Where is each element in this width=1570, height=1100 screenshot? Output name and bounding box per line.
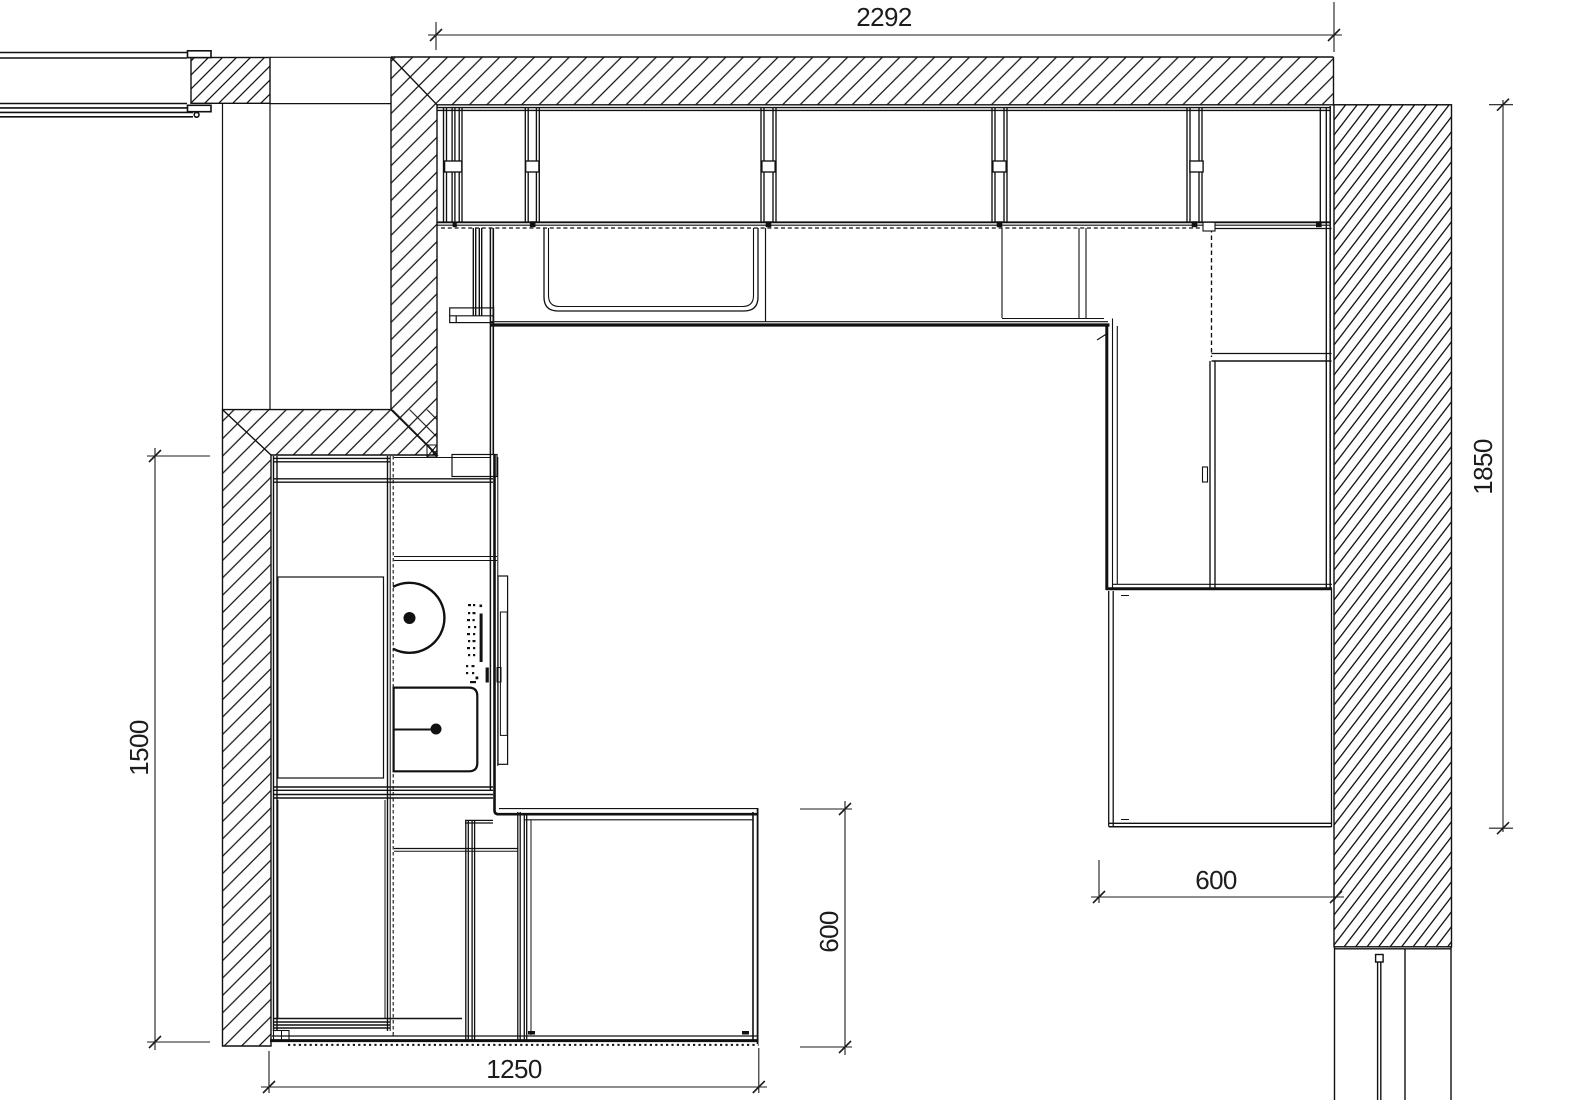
- svg-text:600: 600: [1195, 865, 1237, 895]
- svg-text:1500: 1500: [124, 720, 154, 776]
- svg-text:600: 600: [814, 911, 844, 953]
- svg-text:1850: 1850: [1468, 439, 1498, 495]
- svg-text:1250: 1250: [486, 1054, 542, 1084]
- svg-text:2292: 2292: [856, 2, 912, 32]
